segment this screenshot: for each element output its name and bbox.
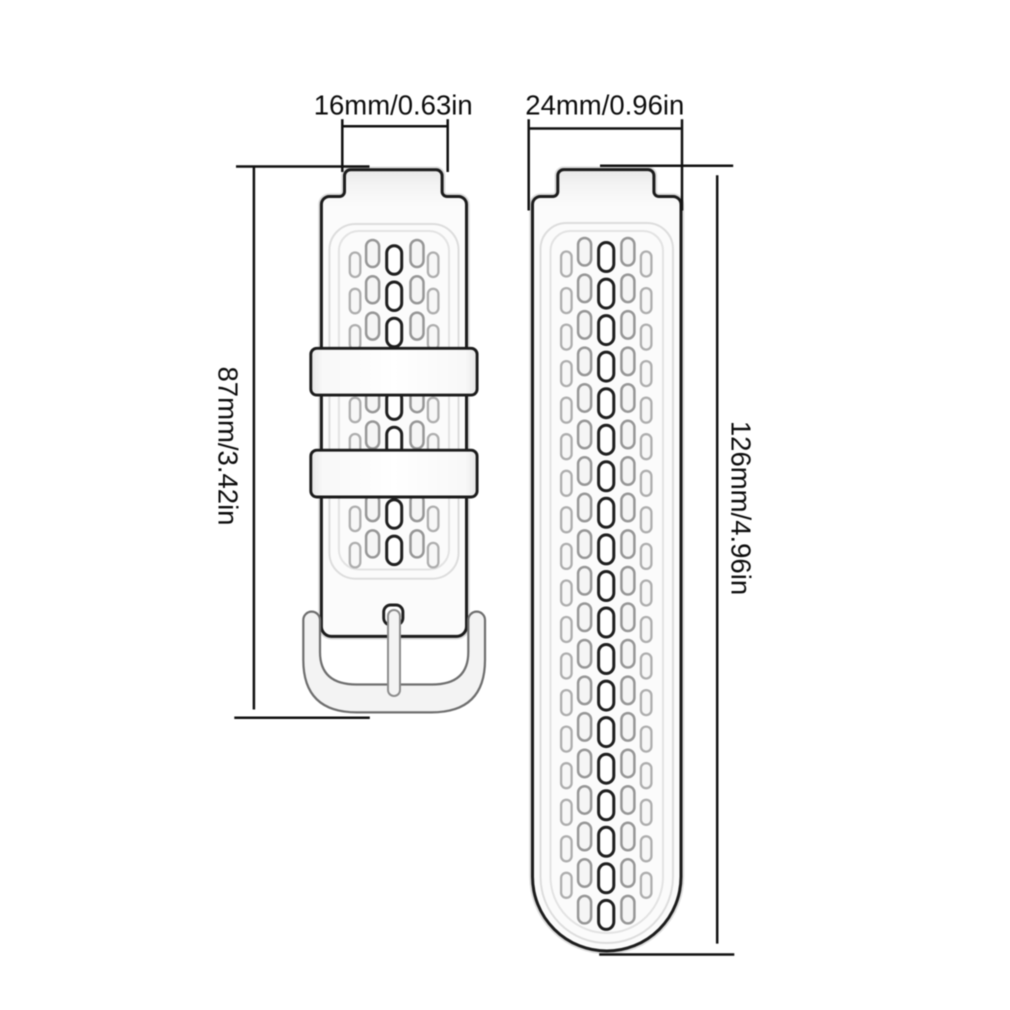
svg-text:16mm/0.63in: 16mm/0.63in <box>314 90 473 121</box>
svg-text:126mm/4.96in: 126mm/4.96in <box>726 421 757 595</box>
svg-text:24mm/0.96in: 24mm/0.96in <box>525 90 684 121</box>
svg-text:87mm/3.42in: 87mm/3.42in <box>213 367 244 526</box>
